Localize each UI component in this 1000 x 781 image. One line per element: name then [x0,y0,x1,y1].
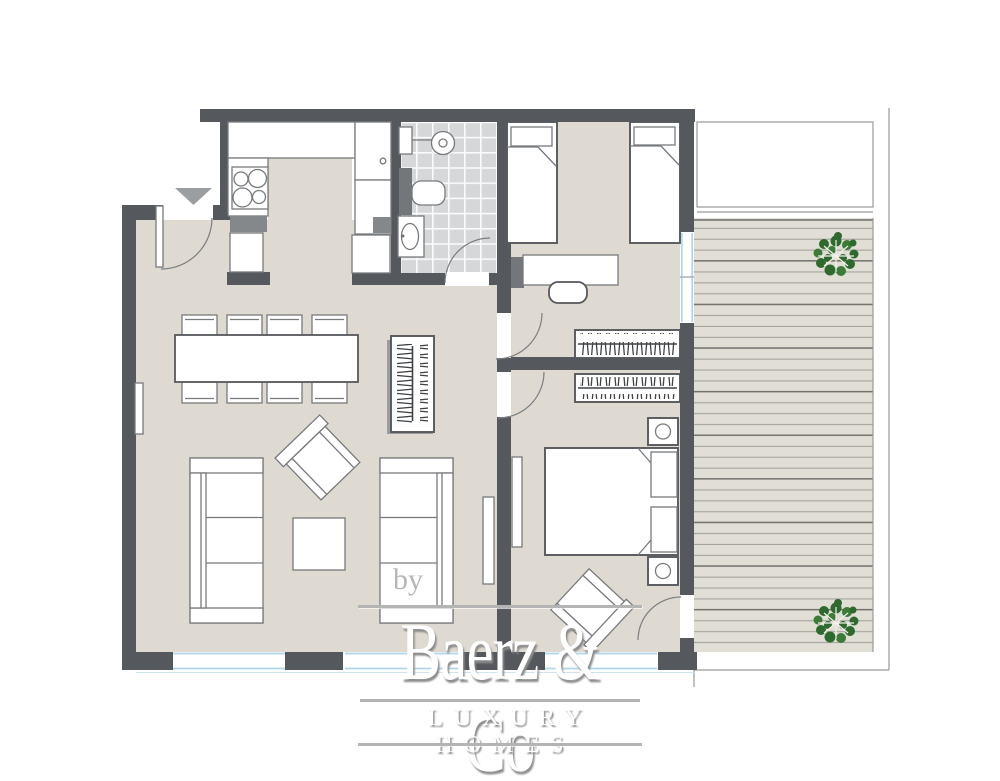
desk-chair [549,282,587,303]
window [173,652,285,670]
floor-plan-canvas [0,0,1000,781]
watermark-rule [358,743,642,746]
window [545,652,657,670]
kitchen-cabinet [230,233,263,272]
terrace-planter [697,122,873,207]
radiator [512,457,522,547]
bathroom-sink [398,216,424,257]
dining-table [175,335,358,382]
kitchen-appliance [373,217,391,233]
single-bed [630,122,680,243]
wardrobe [575,374,680,402]
kitchen-sink-counter [355,122,391,180]
terrace-deck [694,218,873,652]
terrace [694,108,889,687]
window [345,652,463,670]
kitchen-counter-top [228,122,355,158]
wardrobe [575,330,680,358]
desk [523,255,618,285]
single-bed [507,122,557,243]
entrance-arrow-icon [175,188,212,205]
sofa [380,458,453,623]
bedroom-1-door-opening [497,372,511,417]
desk-side-unit [511,257,524,288]
coffee-table [293,518,345,570]
radiator [135,383,143,434]
double-bed [545,448,678,555]
watermark-rule [358,605,642,608]
bedroom-2-door-opening [497,313,511,358]
watermark-rule [360,699,640,702]
nightstand [648,557,678,585]
kitchen-appliance [230,216,267,232]
entrance-door-leaf [156,206,163,267]
bathroom-door-opening [445,272,489,286]
kitchen-floor [268,158,352,220]
kitchen-cabinet [352,235,390,273]
stove [232,167,268,209]
nightstand [648,418,678,445]
terrace-door-opening [680,595,694,638]
sofa [190,458,263,623]
window [680,232,694,323]
radiator [483,497,494,584]
sideboard [387,336,434,434]
floor-plan-page: by Baerz & Co LUXURY HOMES [0,0,1000,781]
